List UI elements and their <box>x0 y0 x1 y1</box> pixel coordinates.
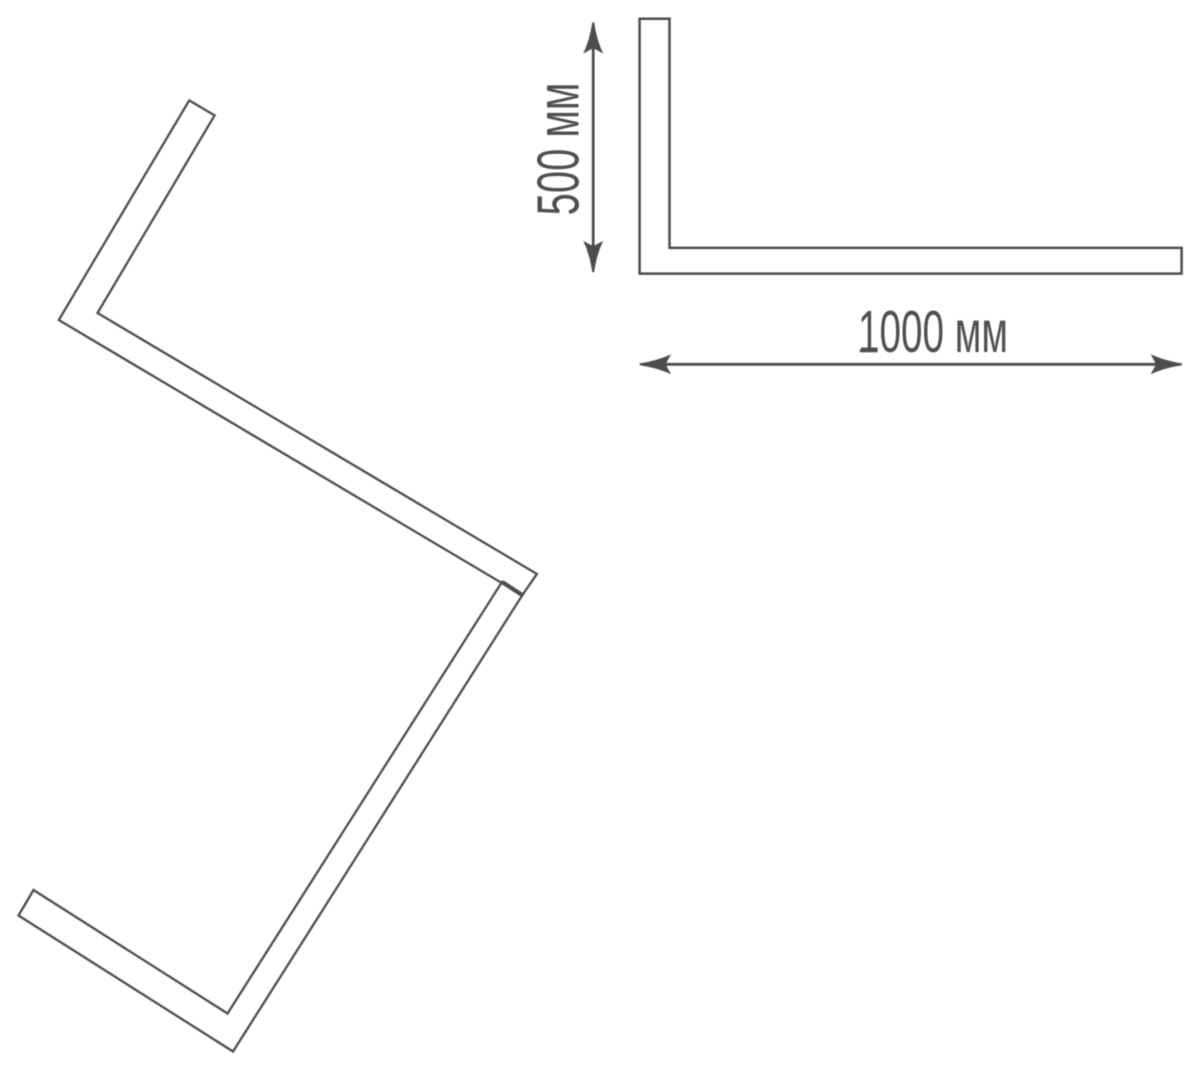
svg-text:500 мм: 500 мм <box>524 83 591 216</box>
svg-text:1000 мм: 1000 мм <box>858 299 1008 365</box>
